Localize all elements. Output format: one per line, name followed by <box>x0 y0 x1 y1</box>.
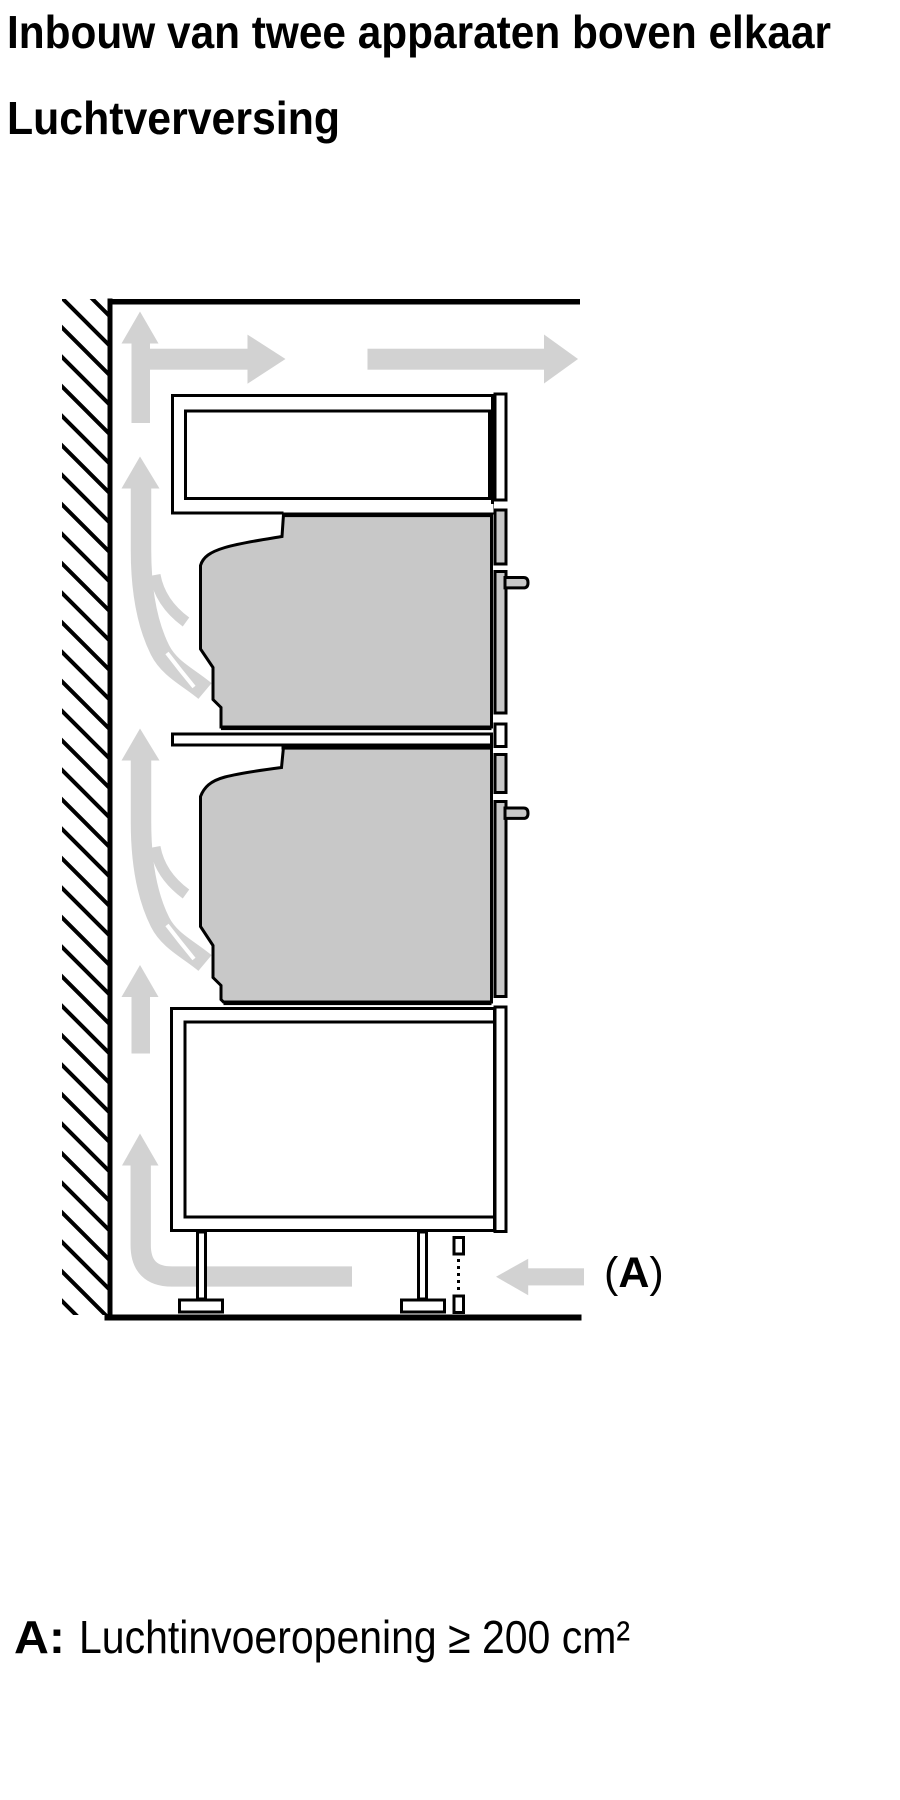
svg-text:Luchtinvoeropening ≥ 200 cm²: Luchtinvoeropening ≥ 200 cm² <box>79 1611 630 1663</box>
svg-text:(A): (A) <box>604 1249 664 1297</box>
svg-text:Inbouw van twee apparaten bove: Inbouw van twee apparaten boven elkaar <box>7 6 831 58</box>
svg-text:Luchtverversing: Luchtverversing <box>7 92 340 144</box>
svg-text:A:: A: <box>14 1611 65 1663</box>
